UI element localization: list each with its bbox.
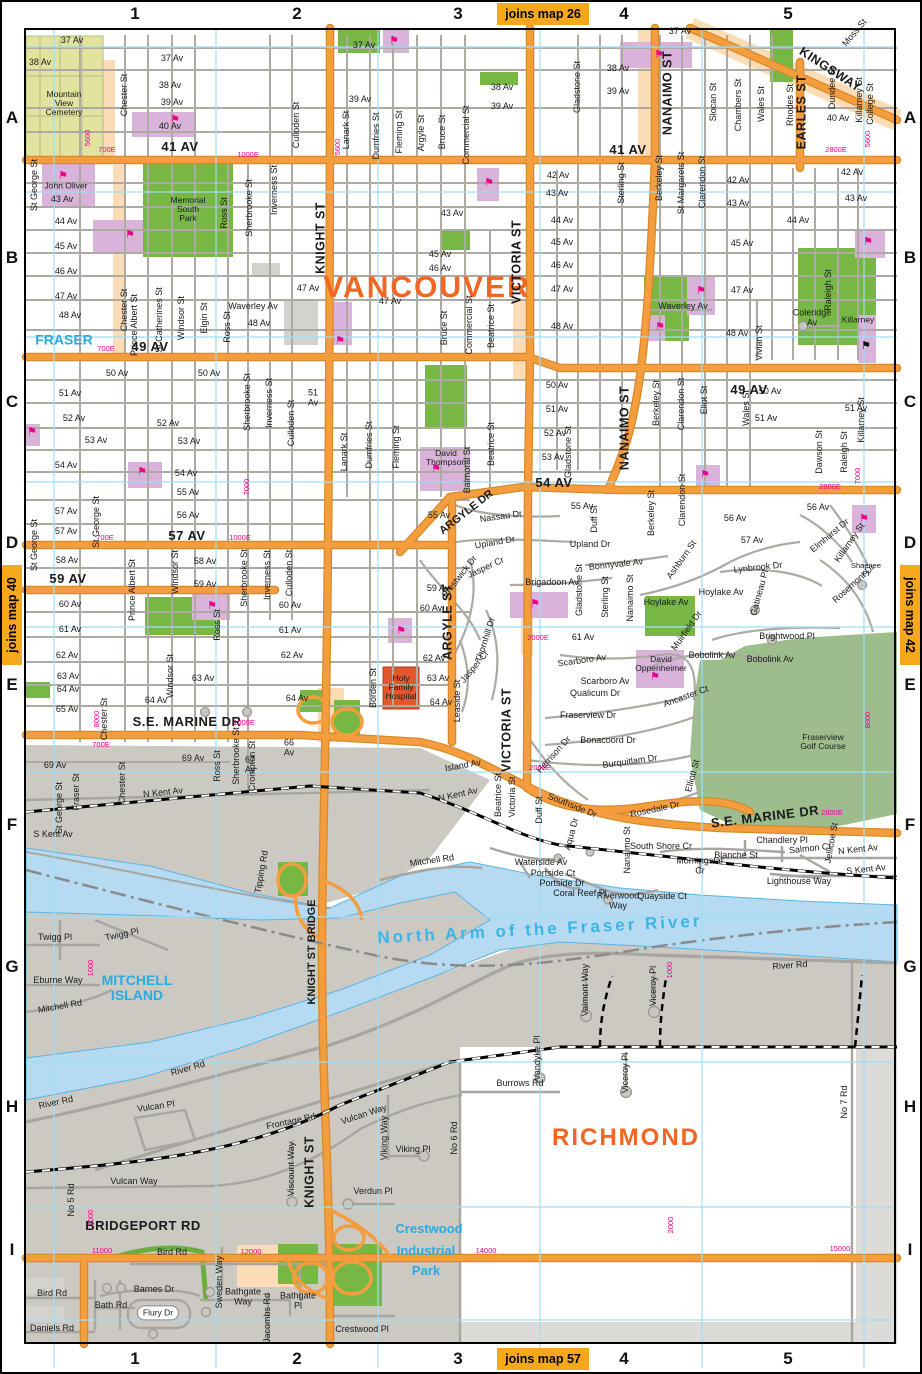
map-label: 700E <box>98 146 116 154</box>
map-label: Commercial St <box>465 295 475 354</box>
map-label: 38 Av <box>159 81 181 91</box>
map-label: Chambers St <box>734 79 744 132</box>
map-label: Ross St <box>213 750 223 782</box>
map-label: Chester St <box>120 289 130 332</box>
map-label: 53 Av <box>542 453 564 463</box>
map-label: 69 Av <box>182 754 204 764</box>
map-label: Elgin St <box>200 302 210 333</box>
map-label: 2000E <box>529 764 551 772</box>
map-label: 69 Av <box>44 761 66 771</box>
map-label: Ross St <box>220 197 230 229</box>
map-label: 62 Av <box>281 651 303 661</box>
map-label: 61 Av <box>59 625 81 635</box>
map-label: Viscount Way <box>287 1142 297 1197</box>
map-label: 58 Av <box>194 557 216 567</box>
map-label: Verdun Pl <box>353 1187 392 1197</box>
city-label-vancouver: VANCOUVER <box>323 272 530 304</box>
map-label: 8000 <box>864 712 872 729</box>
map-label: 38 Av <box>29 58 51 68</box>
map-label: 43 Av <box>51 195 73 205</box>
map-label: 58 Av <box>56 556 78 566</box>
map-label: Waterside Av <box>515 858 568 868</box>
map-label: Brightwood Pl <box>759 632 815 642</box>
map-label: 56 Av <box>177 511 199 521</box>
map-label: Inverness St <box>265 378 275 428</box>
map-label: St George St <box>55 782 65 834</box>
map-label: 2000 <box>87 1210 95 1227</box>
map-label: VICTORIA ST <box>510 220 524 304</box>
map-label: 7000 <box>243 479 251 496</box>
map-label: Jasper Cr <box>459 649 492 685</box>
map-label: VICTORIA ST <box>500 688 514 772</box>
map-label: 48 Av <box>248 319 270 329</box>
map-label: 2000E <box>527 634 549 642</box>
map-label: Viking Pl <box>396 1145 431 1155</box>
school-flag-icon: ⚑ <box>335 336 345 348</box>
map-label: N Kent Av <box>143 786 184 800</box>
map-label: Slocan St <box>709 83 719 122</box>
map-label: 57 Av <box>55 507 77 517</box>
map-label: 53 Av <box>178 437 200 447</box>
map-label: 46 Av <box>429 264 451 274</box>
map-label: Bath Rd <box>95 1301 128 1311</box>
map-label: Crestwood <box>395 1222 462 1236</box>
map-label: 1000E <box>237 151 259 159</box>
map-label: College St <box>866 83 876 125</box>
map-label: 49 AV <box>730 383 767 397</box>
map-label: Bobolink Av <box>689 651 736 661</box>
map-label: Quayside Ct <box>637 892 687 902</box>
map-label: Portside Dr <box>539 879 584 889</box>
map-labels-layer: VANCOUVERRICHMONDFRASERMITCHELL ISLANDNo… <box>0 0 922 1374</box>
map-label: 65 Av <box>56 705 78 715</box>
map-label: Killarney <box>842 315 875 324</box>
map-label: Rosedale Dr <box>630 800 681 820</box>
map-label: Clarendon St <box>678 474 688 527</box>
map-label: Gladstone St <box>564 426 574 478</box>
map-label: Twigg Pl <box>38 933 72 943</box>
map-label: 42 Av <box>841 168 863 178</box>
map-label: 14000 <box>476 1247 497 1255</box>
map-label: Wales St <box>742 390 752 426</box>
map-label: Argyle St <box>417 115 427 152</box>
map-label: Clarendon St <box>677 378 687 431</box>
map-label: Coral Reef Pl <box>553 889 607 899</box>
map-label: Rhodes St <box>786 84 796 126</box>
map-label: 59 Av <box>427 584 449 594</box>
map-label: Coleridge Av <box>793 308 832 327</box>
map-label: ARGYLE DR <box>438 488 496 537</box>
map-label: 48 Av <box>726 329 748 339</box>
school-flag-icon: ⚑ <box>27 427 37 439</box>
map-label: St George St <box>30 519 40 571</box>
map-label: Killarney St <box>855 77 865 123</box>
school-flag-icon: ⚑ <box>650 672 660 684</box>
map-label: 47 Av <box>551 285 573 295</box>
map-label: 2800E <box>819 483 841 491</box>
map-label: Fleming St <box>392 425 402 468</box>
school-flag-icon: ⚑ <box>530 599 540 611</box>
map-label: 48 Av <box>59 311 81 321</box>
map-label: Muirfield Dr <box>670 609 704 652</box>
map-label: Park <box>412 1264 440 1278</box>
map-label: Ross St <box>213 609 223 641</box>
map-label: EARLES ST <box>795 75 809 150</box>
map-label: 15000 <box>830 1245 851 1253</box>
map-label: Ross St <box>223 311 233 343</box>
map-label: River Rd <box>38 1095 74 1112</box>
map-label: 37 Av <box>61 36 83 46</box>
map-label: Bird Rd <box>37 1289 67 1299</box>
map-label: Shaenee Pl <box>851 562 881 578</box>
map-label: 50 Av <box>198 369 220 379</box>
map-label: S.E. MARINE DR <box>710 803 820 830</box>
map-label: 60 Av <box>420 604 442 614</box>
map-label: Flury Dr <box>137 1305 179 1320</box>
map-label: KNIGHT ST <box>314 202 328 274</box>
map-label: No 7 Rd <box>840 1085 850 1118</box>
map-label: Vulcan Way <box>110 1177 157 1187</box>
map-label: 2800E <box>821 809 843 817</box>
map-label: 43 Av <box>845 194 867 204</box>
map-label: 41 AV <box>609 143 646 157</box>
map-label: Frontage Rd <box>266 1112 317 1132</box>
map-label: Viking Way <box>380 1116 390 1161</box>
map-label: NANAIMO ST <box>661 51 675 135</box>
map-label: Leaside St <box>453 680 463 723</box>
map-label: Riverwood Way <box>597 891 640 910</box>
map-label: Inverness St <box>263 550 273 600</box>
map-label: Sterling St <box>617 162 627 204</box>
map-label: Moss St <box>841 17 869 48</box>
map-label: Gatineau Pl <box>749 569 771 617</box>
map-label: 5600 <box>334 139 342 156</box>
map-label: 59 AV <box>49 572 86 586</box>
map-label: 44 Av <box>55 217 77 227</box>
map-label: 45 Av <box>551 238 573 248</box>
map-label: 51 Av <box>546 405 568 415</box>
school-flag-icon: ⚑ <box>654 50 664 62</box>
map-label: Island Av <box>444 758 482 774</box>
map-label: 49 AV <box>131 340 168 354</box>
map-label: 46 Av <box>55 267 77 277</box>
map-label: 59 Av <box>194 580 216 590</box>
map-label: Memorial South Park <box>171 196 206 224</box>
atlas-page: VANCOUVERRICHMONDFRASERMITCHELL ISLANDNo… <box>0 0 922 1374</box>
map-label: Killarney St <box>857 397 867 443</box>
map-label: Dawson St <box>815 430 825 474</box>
map-label: 37 Av <box>669 27 691 37</box>
map-label: Sherbrooke St <box>243 373 253 431</box>
map-label: St Catherines St <box>155 287 165 353</box>
map-label: Waverley Av <box>658 302 708 312</box>
map-label: Ashburn St <box>665 539 699 581</box>
map-label: 700E <box>92 741 110 749</box>
map-label: Bird Rd <box>157 1248 187 1258</box>
map-label: 39 Av <box>607 87 629 97</box>
map-label: Berkeley St <box>652 380 662 426</box>
map-label: Vivian St <box>755 325 765 360</box>
map-label: 55 Av <box>177 488 199 498</box>
map-label: 51 Av <box>308 388 318 407</box>
map-label: Dundee St <box>828 67 838 110</box>
map-label: Scarboro Av <box>581 677 630 687</box>
map-label: N Kent Av <box>838 843 879 857</box>
join-tab-left[interactable]: joins map 40 <box>2 565 22 665</box>
map-label: KNIGHT ST BRIDGE <box>307 899 319 1004</box>
map-label: 52 Av <box>157 419 179 429</box>
map-label: Mitchell Rd <box>409 853 454 869</box>
map-label: Windsor St <box>166 654 176 698</box>
map-label: Duff St <box>590 505 600 532</box>
school-flag-icon: ⚑ <box>207 601 217 613</box>
map-label: 51 Av <box>755 414 777 424</box>
map-label: 47 Av <box>297 284 319 294</box>
map-label: 41 AV <box>161 140 198 154</box>
map-label: 45 Av <box>429 250 451 260</box>
map-label: Lanark St <box>340 433 350 472</box>
map-label: Southside Dr <box>546 792 598 821</box>
map-label: Aqua Dr <box>563 817 581 851</box>
join-tab-bottom[interactable]: joins map 57 <box>497 1348 589 1370</box>
map-label: 56 Av <box>807 503 829 513</box>
map-label: 54 AV <box>535 476 572 490</box>
map-label: Brigadoon Av <box>525 578 578 588</box>
map-label: Hoylake Av <box>644 598 689 608</box>
map-label: 54 Av <box>55 461 77 471</box>
map-label: 64 Av <box>57 685 79 695</box>
map-label: Prestwick Dr <box>441 554 480 600</box>
map-label: Culloden St <box>292 102 302 149</box>
map-label: 60 Av <box>59 600 81 610</box>
map-label: Bruce St <box>438 115 448 150</box>
map-label: KNIGHT ST <box>303 1136 317 1208</box>
school-flag-icon: ⚑ <box>484 178 494 190</box>
map-label: 40 Av <box>827 114 849 124</box>
map-label: Mitchell Rd <box>37 998 83 1015</box>
map-label: Prince Albert St <box>128 559 138 621</box>
map-label: BRIDGEPORT RD <box>85 1219 201 1233</box>
map-label: 7000 <box>854 468 862 485</box>
join-tab-top[interactable]: joins map 26 <box>497 3 589 25</box>
map-label: Nanaimo St <box>626 574 636 621</box>
map-label: 52 Av <box>63 414 85 424</box>
school-flag-icon: ⚑ <box>396 626 406 638</box>
map-label: 700E <box>97 345 115 353</box>
map-label: 50 Av <box>759 387 781 397</box>
map-label: Dumfries St <box>372 112 382 159</box>
map-label: Fleming St <box>395 110 405 153</box>
map-label: 45 Av <box>731 239 753 249</box>
map-label: Beatrice St <box>487 422 497 466</box>
map-label: Beatrice St <box>494 773 504 817</box>
map-label: Chester St <box>100 698 110 741</box>
map-label: S Kent Av <box>846 863 886 877</box>
map-label: David Thompson <box>426 449 466 467</box>
map-label: 55 Av <box>571 502 593 512</box>
map-label: Portside Ct <box>531 869 576 879</box>
map-label: Prince Albert St <box>130 294 140 356</box>
map-label: Jacombs Rd <box>263 1293 273 1343</box>
map-label: Lynbrook Dr <box>733 561 782 576</box>
map-label: 37 Av <box>353 41 375 51</box>
map-label: KINGSWAY <box>797 45 864 95</box>
map-label: River Rd <box>772 960 808 972</box>
map-label: 51 Av <box>845 404 867 414</box>
map-label: No 5 Rd <box>67 1183 77 1216</box>
map-label: 5600 <box>864 131 872 148</box>
map-label: 62 Av <box>423 654 445 664</box>
map-label: Burquitlam Dr <box>602 753 658 770</box>
map-label: Lanark St <box>342 111 352 150</box>
map-label: Harrison Dr <box>535 735 573 776</box>
map-label: 54 Av <box>175 469 197 479</box>
school-flag-icon: ⚑ <box>137 467 147 479</box>
map-label: 55 Av <box>428 511 450 521</box>
map-label: Fraserview Golf Course <box>800 733 845 751</box>
join-tab-right[interactable]: joins map 42 <box>900 565 920 665</box>
map-label: Chandlery Pl <box>756 836 808 846</box>
map-label: 2800E <box>825 146 847 154</box>
map-label: Wales St <box>757 86 767 122</box>
map-label: Upland Dr <box>570 540 611 550</box>
map-label: 66 Av <box>284 738 294 757</box>
map-label: Elmhurst Dr <box>809 517 852 555</box>
map-label: 50 Av <box>106 369 128 379</box>
school-flag-icon: ⚑ <box>125 230 135 242</box>
map-label: 60 Av <box>279 601 301 611</box>
map-label: 47 Av <box>731 286 753 296</box>
school-flag-icon: ⚑ <box>431 464 441 476</box>
map-label: Ancaster Ct <box>662 684 710 709</box>
map-label: St Margarets St <box>677 152 687 215</box>
map-label: Industrial <box>397 1244 456 1258</box>
map-label: 56 Av <box>724 514 746 524</box>
map-label: St George St <box>30 159 40 211</box>
map-label: Bathgate Way <box>225 1287 261 1306</box>
map-label: Balmoral St <box>463 447 473 494</box>
map-label: 50 Av <box>546 381 568 391</box>
map-label: 51 Av <box>59 389 81 399</box>
map-label: Vulcan Way <box>340 1103 388 1127</box>
map-label: John Oliver <box>45 181 88 190</box>
map-label: Berkeley St <box>655 155 665 201</box>
map-label: 43 Av <box>727 199 749 209</box>
map-label: 44 Av <box>551 216 573 226</box>
map-label: 39 Av <box>349 95 371 105</box>
map-label: Twigg Pl <box>104 927 139 944</box>
map-label: NANAIMO ST <box>618 386 632 470</box>
map-label: 67 Av <box>245 755 255 774</box>
map-label: Bonnyvale Av <box>588 557 643 572</box>
map-label: 700E <box>96 534 114 542</box>
map-label: Bruce St <box>440 311 450 346</box>
map-label: Victoria St <box>508 777 518 818</box>
map-label: 53 Av <box>85 436 107 446</box>
map-label: St George St <box>92 496 102 548</box>
map-label: Holy Family Hospital <box>386 674 417 702</box>
map-label: Jasper Cr <box>466 555 505 580</box>
map-label: 43 Av <box>546 189 568 199</box>
map-label: Viceroy Pl <box>649 966 659 1006</box>
map-label: S Kent Av <box>33 830 72 840</box>
map-label: Vandyke Pl <box>533 1036 543 1081</box>
school-flag-icon: ⚑ <box>655 322 665 334</box>
map-label: 39 Av <box>491 102 513 112</box>
map-label: Inverness St <box>270 165 280 215</box>
school-flag-icon: ⚑ <box>700 470 710 482</box>
map-label: Salmon Ct <box>789 842 832 856</box>
map-label: 64 Av <box>286 694 308 704</box>
map-label: 61 Av <box>279 626 301 636</box>
school-flag-icon: ⚑ <box>859 514 869 526</box>
map-label: Barnes Dr <box>134 1285 175 1295</box>
map-label: Sterling St <box>601 576 611 618</box>
map-label: Bonacoord Dr <box>580 736 636 746</box>
map-label: 63 Av <box>57 672 79 682</box>
map-label: 42 Av <box>727 176 749 186</box>
map-label: Sherbrooke St <box>240 549 250 607</box>
map-label: Crestwood Pl <box>335 1325 389 1335</box>
map-label: Raleigh St <box>840 431 850 473</box>
map-label: 57 AV <box>168 529 205 543</box>
map-label: 1000 <box>666 962 674 979</box>
map-label: Thornhill Dr <box>474 616 498 663</box>
map-label: Dumfries St <box>365 421 375 468</box>
map-label: Sweden Way <box>215 1256 225 1309</box>
map-label: 64 Av <box>145 696 167 706</box>
map-label: Qualicum Dr <box>570 689 620 699</box>
map-label: Burrows Rd <box>496 1079 543 1089</box>
map-label: 11000 <box>92 1247 112 1255</box>
map-label: Fraser St <box>72 773 82 810</box>
map-label: Morningstar Cr <box>676 856 724 875</box>
map-label: Killarney St <box>833 522 867 565</box>
map-label: Elliott St <box>684 759 702 793</box>
map-label: Jellicoe St <box>824 822 841 864</box>
map-label: 43 Av <box>441 209 463 219</box>
map-label: Chester St <box>120 74 130 117</box>
map-label: 1000E <box>233 719 255 727</box>
map-label: Bathgate Pl <box>280 1291 316 1310</box>
map-label: 39 Av <box>161 98 183 108</box>
map-label: Scarboro Av <box>557 653 607 669</box>
map-label: Tipping Rd <box>253 850 270 894</box>
map-label: Crompton St <box>248 741 258 792</box>
map-label: Lighthouse Way <box>767 877 831 887</box>
school-flag-icon: ⚑ <box>58 171 68 183</box>
map-label: Culloden St <box>287 400 297 447</box>
map-label: 61 Av <box>572 633 594 643</box>
map-label: S.E. MARINE DR <box>133 715 242 729</box>
map-label: 62 Av <box>56 651 78 661</box>
map-label: Vulcan Pl <box>137 1100 176 1115</box>
map-label: No 6 Rd <box>450 1121 460 1154</box>
map-label: Chester St <box>118 762 128 805</box>
map-label: Windsor St <box>177 296 187 340</box>
map-label: Commercial St <box>462 105 472 164</box>
map-label: South Shore Cr <box>630 842 692 852</box>
map-label: Nanaimo St <box>623 826 633 873</box>
map-label: Eliot St <box>700 386 710 415</box>
map-label: 8000 <box>93 711 101 728</box>
map-label: N Kent Av <box>437 786 478 804</box>
school-flag-icon: ⚑ <box>861 341 871 353</box>
school-flag-icon: ⚑ <box>389 36 399 48</box>
map-label: 12000 <box>241 1248 262 1256</box>
map-label: 45 Av <box>55 242 77 252</box>
map-label: 63 Av <box>192 674 214 684</box>
